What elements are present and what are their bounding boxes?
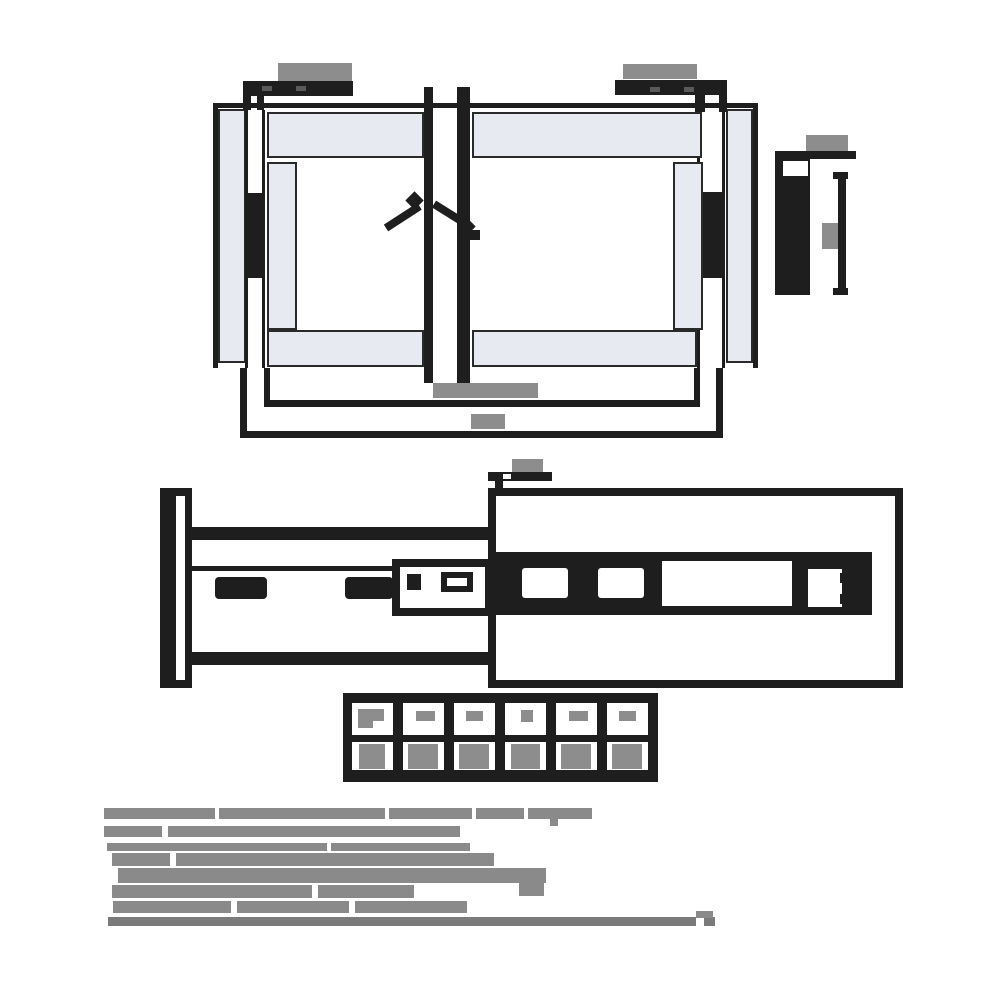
note-step-right — [696, 911, 713, 918]
table-header-text-tail-0 — [358, 720, 373, 728]
note-line-2-seg-1 — [331, 843, 470, 851]
table-value-text-5 — [612, 744, 642, 769]
outer-width-dim-leg-left — [240, 368, 247, 438]
cabinet-right-edge — [753, 103, 758, 368]
center-arrow-left-head — [405, 191, 423, 209]
front-outer-width-dimension-label — [471, 414, 505, 429]
note-line-3-seg-1 — [176, 853, 494, 866]
drawer-bottom-panel-left — [267, 330, 424, 367]
note-line-6-seg-0 — [113, 901, 231, 913]
note-line-5-seg-1 — [318, 885, 414, 898]
profile-rail-hook-top — [833, 172, 848, 179]
rail-line-right-outer — [722, 110, 725, 368]
drawer-top-panel-right — [472, 112, 702, 158]
note-line-7-seg-1 — [704, 917, 715, 926]
roller-block-2 — [345, 577, 393, 599]
drawer-top-panel-left — [267, 112, 424, 158]
profile-body-notch — [783, 161, 808, 176]
table-value-text-2 — [459, 744, 489, 769]
cabinet-top-edge — [213, 103, 758, 108]
profile-rail-hook-bottom — [833, 288, 848, 295]
table-value-text-4 — [561, 744, 591, 769]
profile-middle-dimension-label — [822, 223, 838, 249]
front-inner-width-dimension-label — [433, 383, 538, 398]
note-line-6-seg-1 — [237, 901, 349, 913]
profile-top-dimension-label — [806, 135, 848, 151]
note-line-6-seg-2 — [355, 901, 467, 913]
mounting-bracket-right — [615, 80, 727, 95]
band-cutout-3 — [662, 561, 792, 606]
cabinet-side-panel-left — [218, 109, 246, 363]
note-line-0-seg-2 — [389, 808, 472, 819]
note-line-1-seg-0 — [104, 826, 162, 837]
drawer-side-panel-left — [267, 162, 297, 330]
table-header-text-5 — [619, 711, 636, 721]
table-header-text-1 — [416, 711, 435, 721]
bracket-right-dimension-label — [623, 64, 697, 79]
profile-rail — [838, 178, 846, 290]
bracket-left-screw-slot-2 — [296, 86, 306, 91]
note-line-5-seg-0 — [112, 885, 312, 898]
mounting-bracket-right-leg — [695, 95, 705, 112]
outer-width-dim-line — [240, 431, 723, 438]
note-line-7-seg-0 — [108, 917, 696, 926]
bracket-left-screw-slot-1 — [262, 86, 272, 91]
band-cutout-1 — [522, 568, 568, 598]
roller-block-1 — [215, 577, 267, 599]
drawer-side-panel-right — [673, 162, 703, 330]
note-block-right — [519, 872, 544, 896]
slide-body-right — [703, 192, 722, 278]
slide-body-left — [248, 193, 265, 278]
band-cutout-2 — [598, 568, 644, 598]
mounting-bracket-right-leg2 — [719, 95, 727, 112]
table-header-text-2 — [466, 711, 483, 721]
table-header-text-3 — [521, 710, 533, 722]
center-arrow-right-blob — [466, 230, 480, 240]
note-line-0-seg-1 — [219, 808, 385, 819]
table-value-text-0 — [359, 744, 385, 769]
bracket-left-dimension-label — [278, 63, 352, 81]
note-line-2-seg-0 — [107, 843, 327, 851]
bracket-right-screw-slot-2 — [684, 87, 694, 92]
table-header-text-4 — [569, 711, 588, 721]
drawer-bottom-panel-right — [472, 330, 697, 367]
rear-bracket-slot — [176, 496, 185, 680]
carriage-detail-2-core — [447, 578, 467, 586]
note-line-1-seg-1 — [168, 826, 460, 837]
note-line-0-seg-0 — [104, 808, 215, 819]
note-line-0-seg-3 — [476, 808, 524, 819]
carriage-detail-1 — [407, 574, 421, 590]
note-descender — [550, 819, 558, 826]
note-line-0-seg-4 — [528, 808, 592, 819]
table-value-text-3 — [511, 744, 540, 769]
note-line-3-seg-0 — [112, 853, 170, 866]
technical-drawing-canvas — [0, 0, 1000, 1000]
cabinet-side-panel-right — [726, 109, 753, 363]
inner-width-dim-line — [264, 400, 700, 407]
table-value-text-1 — [408, 744, 438, 769]
bracket-right-screw-slot-1 — [650, 87, 660, 92]
band-cutout-4 — [808, 569, 842, 607]
band-end-detail-web — [846, 578, 851, 604]
mounting-bracket-left-leg — [243, 81, 251, 110]
outer-width-dim-leg-right — [716, 368, 723, 438]
center-divider-bar-left — [424, 87, 433, 383]
inner-member-top-rail — [192, 527, 510, 540]
inner-member-bottom-rail — [192, 652, 510, 665]
mounting-bracket-left-leg2 — [257, 96, 264, 110]
note-line-4-seg-0 — [118, 868, 546, 883]
side-view-top-dimension-label — [512, 459, 543, 472]
